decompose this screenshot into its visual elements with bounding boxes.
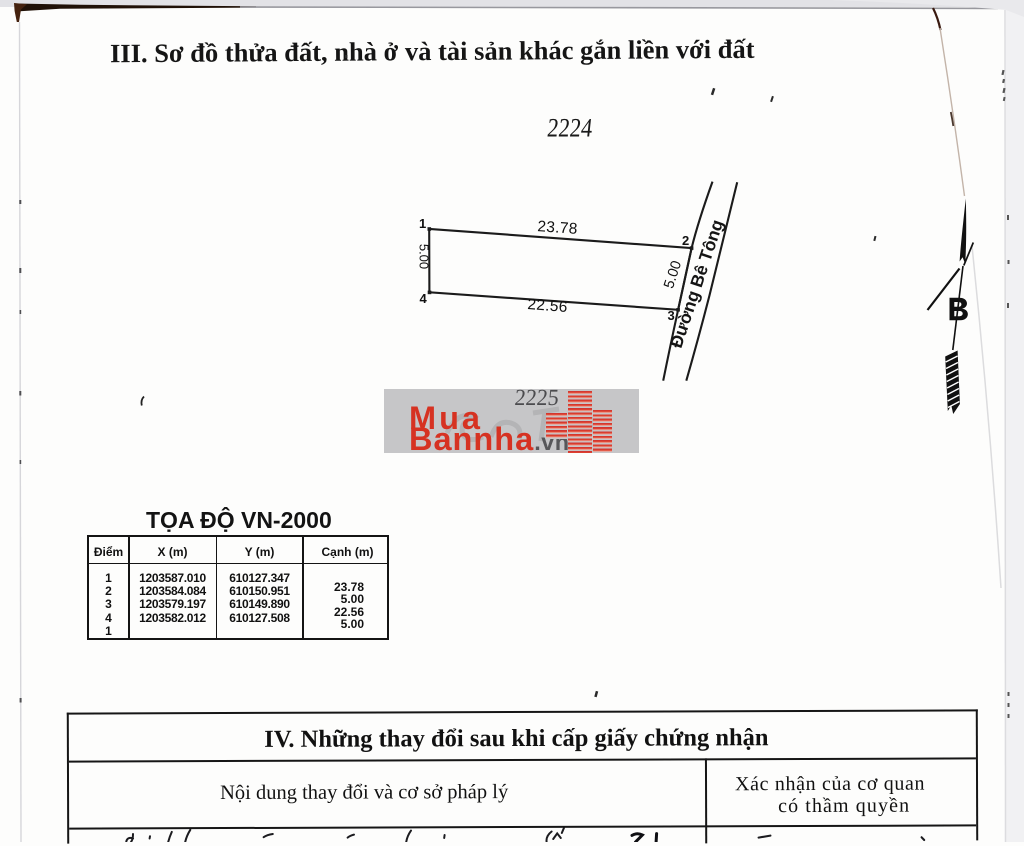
svg-text:2: 2 — [682, 233, 689, 248]
svg-text:4: 4 — [420, 291, 428, 306]
svg-text:1: 1 — [419, 216, 426, 231]
svg-text:23.78: 23.78 — [537, 218, 578, 238]
svg-text:5.00: 5.00 — [661, 259, 685, 291]
svg-text:5.00: 5.00 — [417, 244, 432, 269]
svg-text:22.56: 22.56 — [527, 296, 568, 316]
